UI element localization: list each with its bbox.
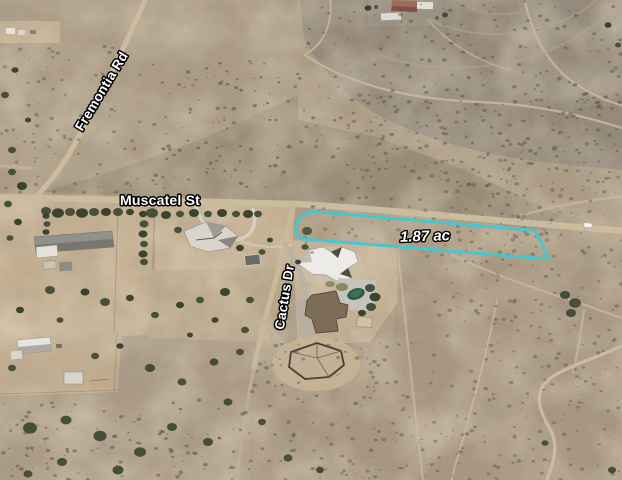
bush <box>457 463 460 465</box>
bush <box>459 210 461 211</box>
bush <box>581 394 583 395</box>
bush <box>580 98 582 99</box>
bush <box>584 230 585 231</box>
bush <box>445 179 450 183</box>
bush <box>577 386 579 387</box>
bush <box>538 429 543 433</box>
bush <box>491 133 493 135</box>
bush <box>466 34 468 35</box>
tree <box>615 43 621 48</box>
bush <box>129 185 132 187</box>
bush <box>349 138 351 139</box>
bush <box>512 249 516 252</box>
bush <box>508 299 512 302</box>
bush <box>553 145 557 148</box>
bush <box>495 477 499 480</box>
bush <box>18 48 22 51</box>
bush <box>527 438 530 440</box>
tree <box>258 419 266 425</box>
bush <box>11 469 13 470</box>
bush <box>541 366 544 368</box>
bush <box>444 245 446 247</box>
bush <box>487 175 491 178</box>
bush <box>185 76 187 77</box>
bush <box>532 265 534 267</box>
bush <box>381 438 386 441</box>
bush <box>77 153 80 155</box>
bush <box>452 438 454 439</box>
bush <box>279 460 282 462</box>
tree <box>174 227 182 233</box>
bush <box>243 411 248 414</box>
bush <box>358 197 362 200</box>
bush <box>217 437 220 439</box>
bush <box>602 93 603 94</box>
bush <box>51 157 52 158</box>
tree <box>8 365 16 371</box>
bush <box>321 7 324 9</box>
bush <box>184 86 186 88</box>
bush <box>365 169 369 172</box>
bush <box>584 380 588 383</box>
bush <box>218 62 221 65</box>
bush <box>152 64 154 66</box>
bush <box>549 306 551 308</box>
bush <box>375 381 379 384</box>
bush <box>179 470 183 473</box>
bush <box>491 56 494 59</box>
bush <box>456 225 460 228</box>
bush <box>73 182 77 185</box>
bush <box>514 179 516 181</box>
bush <box>515 194 518 196</box>
bush <box>379 343 381 344</box>
tree <box>542 440 549 446</box>
bush <box>596 180 600 183</box>
bush <box>94 74 98 77</box>
bush <box>282 393 286 396</box>
tree <box>167 423 177 431</box>
tree <box>176 211 184 217</box>
bush <box>232 107 237 110</box>
bush <box>3 65 7 68</box>
bush <box>375 469 377 470</box>
bush <box>559 212 562 214</box>
bush <box>483 157 486 159</box>
bush <box>496 279 499 281</box>
bush <box>544 275 548 278</box>
bush <box>455 88 459 91</box>
bush <box>366 470 370 473</box>
bush <box>263 63 265 65</box>
bush <box>260 76 263 78</box>
tree <box>57 458 67 466</box>
bush <box>161 430 165 433</box>
bush <box>439 126 443 129</box>
bush <box>478 123 479 124</box>
bush <box>513 100 518 104</box>
bush <box>175 475 179 478</box>
bush <box>64 94 67 96</box>
bush <box>193 452 196 454</box>
bush <box>207 434 209 435</box>
bush <box>217 408 220 410</box>
bush <box>362 477 364 478</box>
bush <box>531 222 532 223</box>
bush <box>542 458 546 461</box>
bush <box>478 201 480 202</box>
tree <box>358 310 366 316</box>
bush <box>34 183 38 186</box>
bush <box>401 190 403 191</box>
bush <box>405 395 410 399</box>
bush <box>596 105 600 108</box>
bush <box>513 434 515 435</box>
bush <box>290 450 293 453</box>
bush <box>8 448 10 449</box>
bush <box>256 370 259 372</box>
bush <box>115 190 119 193</box>
bush <box>573 324 576 326</box>
bush <box>592 32 596 35</box>
bush <box>281 170 286 173</box>
bush <box>565 116 569 119</box>
bush <box>461 434 465 437</box>
bush <box>532 78 534 79</box>
bush <box>342 469 346 472</box>
bush <box>163 187 165 189</box>
bush <box>408 416 410 418</box>
bush <box>620 284 621 285</box>
bush <box>493 19 497 22</box>
bush <box>280 175 282 176</box>
tree <box>217 209 227 217</box>
bush <box>523 149 525 151</box>
tree <box>117 343 124 349</box>
bush <box>52 88 55 90</box>
bush <box>485 287 487 289</box>
bush <box>577 410 579 411</box>
bush <box>27 410 31 413</box>
bush <box>462 266 463 267</box>
bush <box>484 436 486 437</box>
bush <box>540 115 543 117</box>
bush <box>482 84 485 86</box>
bush <box>140 415 142 416</box>
bush <box>188 78 190 79</box>
bush <box>402 407 404 409</box>
bush <box>540 185 542 187</box>
bush <box>602 350 605 352</box>
bush <box>494 111 496 113</box>
bush <box>402 394 405 396</box>
bush <box>362 396 366 399</box>
bush <box>18 191 22 194</box>
bush <box>492 397 495 399</box>
bush <box>507 169 511 172</box>
bush <box>583 162 585 164</box>
bush <box>508 143 512 146</box>
tree <box>196 297 204 303</box>
bush <box>137 187 138 188</box>
tree <box>267 238 273 243</box>
road-label-muscatel: Muscatel St <box>120 192 200 208</box>
bush <box>555 214 557 215</box>
bush <box>276 156 279 159</box>
bush <box>487 399 491 402</box>
bush <box>548 333 551 335</box>
bush <box>418 442 420 443</box>
bush <box>583 186 585 187</box>
bush <box>273 164 278 167</box>
bush <box>51 50 54 52</box>
bush <box>590 171 593 173</box>
bush <box>547 168 550 170</box>
bush <box>4 403 6 404</box>
bush <box>444 190 449 194</box>
bush <box>277 144 279 145</box>
tree <box>100 298 110 306</box>
bush <box>407 100 412 104</box>
bush <box>223 170 226 172</box>
bush <box>373 386 375 388</box>
bush <box>71 411 72 412</box>
bush <box>451 282 453 284</box>
bush <box>385 160 388 162</box>
bush <box>504 197 506 198</box>
bush <box>528 149 533 153</box>
tree <box>241 327 249 333</box>
bush <box>614 304 619 308</box>
bush <box>547 106 551 109</box>
bush <box>488 204 492 207</box>
bush <box>574 368 577 371</box>
bush <box>446 160 448 162</box>
bush <box>355 356 360 359</box>
bush <box>496 273 498 274</box>
bush <box>371 376 375 379</box>
bush <box>357 93 362 97</box>
bush <box>204 468 206 470</box>
bush <box>206 172 208 174</box>
bush <box>346 63 348 64</box>
bush <box>573 362 574 363</box>
bush <box>379 469 381 471</box>
map-canvas: 1.87 ac Fremontia Rd Muscatel St Cactus … <box>0 0 622 480</box>
bush <box>350 98 354 101</box>
bush <box>538 206 542 209</box>
bush <box>582 366 585 368</box>
bush <box>460 161 463 163</box>
bush <box>593 342 597 345</box>
bush <box>165 158 168 160</box>
bush <box>564 151 566 152</box>
bush <box>52 406 55 408</box>
bush <box>26 455 29 457</box>
bush <box>506 179 508 181</box>
bush <box>412 436 414 437</box>
bush <box>501 145 505 148</box>
bush <box>360 169 363 171</box>
tree <box>52 208 64 218</box>
bush <box>461 447 464 449</box>
bush <box>405 31 408 33</box>
bush <box>526 137 531 141</box>
bush <box>310 251 314 254</box>
bush <box>311 129 312 130</box>
bush <box>464 108 467 110</box>
tree <box>212 317 219 323</box>
tree <box>113 208 123 216</box>
bush <box>509 264 512 266</box>
bush <box>415 162 417 164</box>
bush <box>373 162 375 164</box>
tree <box>4 201 12 207</box>
bush <box>540 310 542 312</box>
bush <box>577 129 579 130</box>
bush <box>579 108 583 111</box>
bush <box>354 235 358 238</box>
bush <box>372 360 377 364</box>
bush <box>552 255 555 257</box>
bush <box>36 80 40 83</box>
bush <box>215 147 218 149</box>
bush <box>487 473 490 476</box>
bush <box>21 428 22 429</box>
bush <box>389 198 393 201</box>
bush <box>306 42 311 45</box>
bush <box>390 205 392 207</box>
bush <box>420 4 422 6</box>
bush <box>569 463 573 466</box>
bush <box>347 340 349 341</box>
bush <box>535 99 539 102</box>
bush <box>585 128 588 130</box>
bush <box>164 116 166 118</box>
bush <box>592 383 595 385</box>
tree <box>139 211 147 217</box>
bush <box>600 256 602 258</box>
bush <box>355 135 360 138</box>
tree <box>187 333 193 338</box>
bush <box>326 344 330 347</box>
bush <box>552 182 554 184</box>
bush <box>448 9 452 12</box>
bush <box>423 35 427 38</box>
bush <box>327 97 329 99</box>
bush <box>576 100 580 103</box>
bush <box>598 161 600 163</box>
bush <box>305 46 307 48</box>
bush <box>334 233 337 235</box>
bush <box>314 145 318 148</box>
tree <box>16 307 24 313</box>
tree <box>81 288 90 295</box>
bush <box>581 402 584 404</box>
bush <box>562 25 567 28</box>
bush <box>373 15 375 17</box>
bush <box>227 74 229 75</box>
bush <box>464 208 468 211</box>
bush <box>334 43 336 44</box>
bush <box>260 447 264 450</box>
bush <box>408 131 410 132</box>
bush <box>337 421 338 422</box>
bush <box>274 434 276 435</box>
bush <box>297 344 299 345</box>
bush <box>347 127 349 129</box>
bush <box>614 266 616 267</box>
bush <box>451 74 453 76</box>
bush <box>376 364 380 367</box>
bush <box>165 133 167 134</box>
bush <box>46 467 49 469</box>
bush <box>422 103 424 105</box>
bush <box>597 114 601 117</box>
bush <box>533 355 538 358</box>
bush <box>406 465 409 467</box>
bush <box>40 404 44 407</box>
bush <box>460 101 462 103</box>
bush <box>136 178 138 180</box>
bush <box>608 177 611 179</box>
tree <box>61 416 72 425</box>
bush <box>560 191 561 192</box>
bush <box>418 199 421 202</box>
bush <box>596 351 600 354</box>
bush <box>615 128 618 130</box>
bush <box>253 104 257 107</box>
bush <box>182 127 183 128</box>
bush <box>551 268 554 270</box>
bush <box>381 222 382 223</box>
bush <box>270 116 272 117</box>
bush <box>17 81 18 82</box>
bush <box>293 436 295 438</box>
bush <box>471 168 475 171</box>
bush <box>616 150 619 152</box>
bush <box>409 74 411 75</box>
bush <box>520 143 524 146</box>
bush <box>535 75 537 77</box>
bush <box>611 472 616 476</box>
bush <box>497 275 500 277</box>
bush <box>568 332 570 333</box>
bush <box>614 144 616 146</box>
bush <box>603 215 605 216</box>
bush <box>336 374 338 376</box>
bush <box>331 346 333 347</box>
bush <box>364 196 368 199</box>
bush <box>102 45 106 48</box>
bush <box>168 185 169 186</box>
bush <box>577 161 579 163</box>
bush <box>517 221 519 222</box>
bush <box>451 159 454 161</box>
bush <box>507 191 511 194</box>
bush <box>461 4 465 7</box>
bush <box>371 239 373 240</box>
bush <box>393 105 396 107</box>
bush <box>12 128 16 131</box>
bush <box>616 367 618 369</box>
bush <box>511 181 513 183</box>
bush <box>442 58 447 61</box>
bush <box>574 14 578 17</box>
bush <box>600 39 603 41</box>
bush <box>350 437 354 440</box>
bush <box>419 435 421 436</box>
